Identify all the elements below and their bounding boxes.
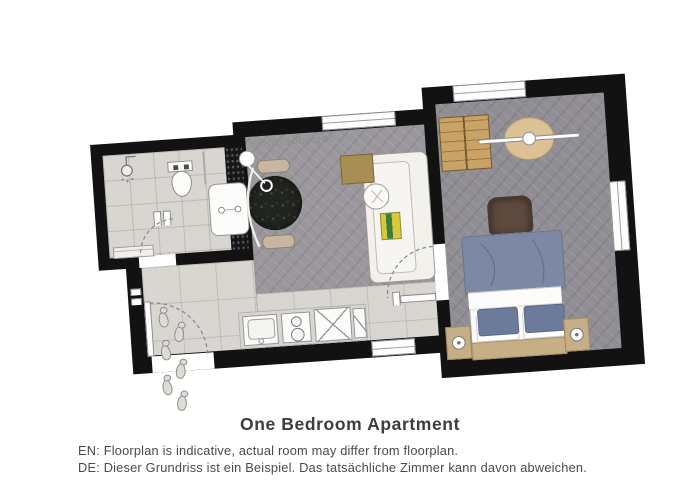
plan-title: One Bedroom Apartment	[0, 414, 700, 435]
cabinet-x	[314, 307, 353, 342]
entrance-jamb	[131, 298, 142, 306]
faucet-spout	[225, 209, 235, 211]
footprint	[175, 363, 186, 379]
stove-burner	[291, 327, 305, 341]
duvet	[461, 230, 566, 295]
entrance-jamb	[130, 288, 141, 296]
pillow	[477, 307, 520, 337]
kitchen-sink	[242, 314, 279, 346]
book	[380, 212, 402, 241]
bathroom-door-leaf	[153, 211, 162, 226]
cabinet-narrow	[352, 308, 367, 339]
footprint	[177, 395, 187, 411]
note-en: EN: Floorplan is indicative, actual room…	[78, 443, 678, 458]
note-de: DE: Dieser Grundriss ist ein Beispiel. D…	[78, 460, 678, 475]
sink-faucet	[258, 338, 264, 344]
hallway-bottom-window	[371, 338, 416, 357]
dining-chair	[262, 234, 296, 250]
sink-basin	[247, 318, 276, 340]
stove-burner	[291, 316, 302, 327]
dining-chair	[256, 158, 290, 174]
bathroom-door-leaf	[163, 210, 172, 225]
side-table	[340, 153, 375, 184]
footprint	[161, 379, 174, 396]
faucet-knob	[234, 205, 241, 212]
toilet-button	[184, 164, 189, 169]
pillow	[523, 303, 566, 333]
vanity-sink	[208, 182, 250, 237]
floorplan-image: One Bedroom Apartment EN: Floorplan is i…	[0, 0, 700, 500]
toilet-button	[173, 165, 178, 170]
stove	[281, 311, 312, 343]
apartment-floorplan	[85, 35, 646, 421]
wardrobe	[438, 114, 492, 172]
